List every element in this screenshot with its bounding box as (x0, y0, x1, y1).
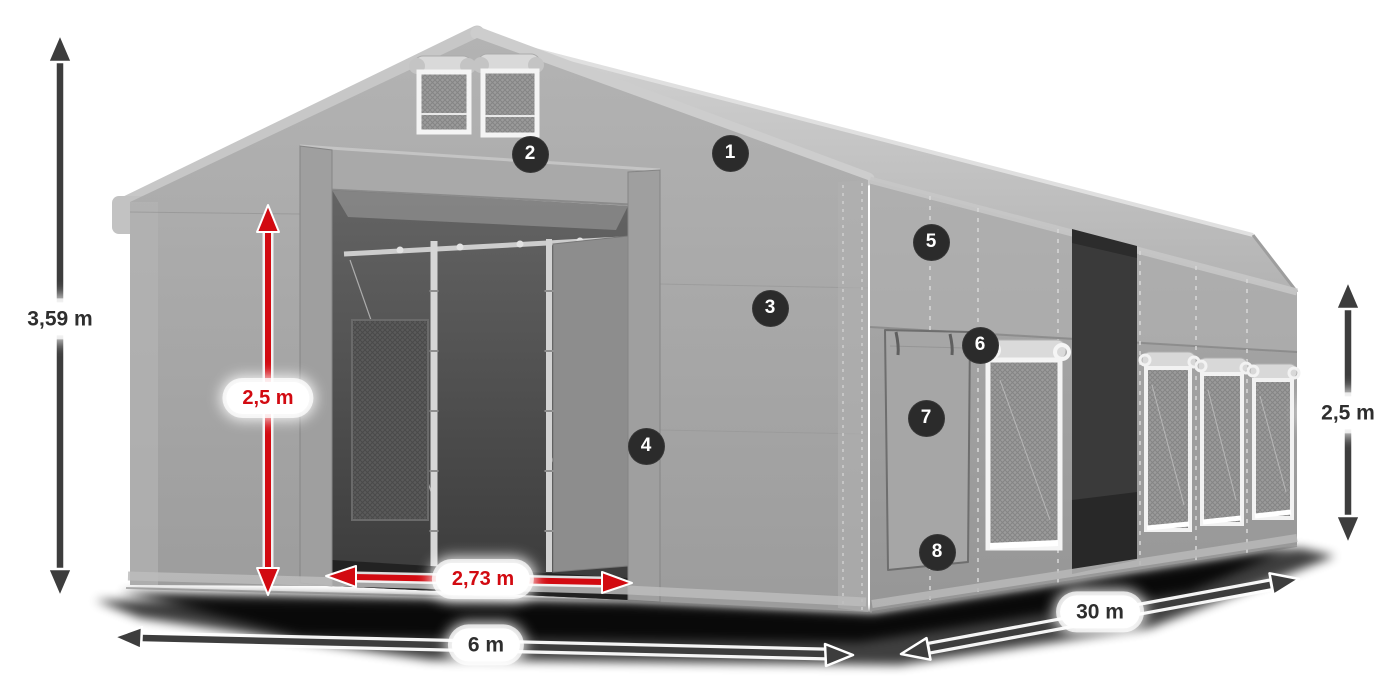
dim-label-entrance-width: 2,73 m (436, 563, 530, 595)
callout-badge-6[interactable]: 6 (962, 327, 999, 364)
dimension-arrows (0, 0, 1400, 700)
dim-label-entrance-height: 2,5 m (226, 382, 309, 414)
dim-label-total-height: 3,59 m (11, 302, 108, 335)
callout-badge-4[interactable]: 4 (628, 428, 665, 465)
dim-label-length: 30 m (1060, 595, 1140, 628)
callout-badge-5[interactable]: 5 (913, 224, 950, 261)
callout-badge-8[interactable]: 8 (919, 534, 956, 571)
callout-badge-3[interactable]: 3 (752, 290, 789, 327)
callout-badge-1[interactable]: 1 (712, 135, 749, 172)
dim-label-width: 6 m (452, 628, 520, 661)
product-diagram: 3,59 m 2,5 m 2,73 m 6 m 30 m 2,5 m 1 2 3… (0, 0, 1400, 700)
dim-label-side-height: 2,5 m (1305, 396, 1391, 429)
callout-badge-2[interactable]: 2 (512, 136, 549, 173)
callout-badge-7[interactable]: 7 (908, 400, 945, 437)
